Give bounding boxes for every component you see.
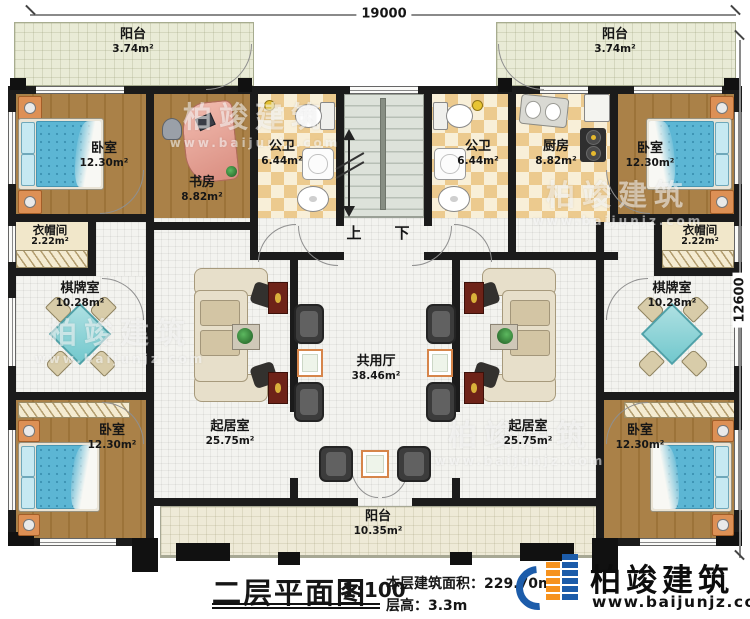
lamp-icon xyxy=(24,196,36,208)
room-area: 12.30m² xyxy=(80,157,129,169)
wall-pier xyxy=(238,78,252,92)
room-area: 25.75m² xyxy=(206,435,255,447)
company-logo-icon xyxy=(546,562,560,600)
pillow xyxy=(715,446,729,477)
table-top xyxy=(302,354,318,372)
room-name: 卧室 xyxy=(80,142,129,157)
room-name: 起居室 xyxy=(206,420,255,435)
room-label-bedroom-bottom-right: 卧室 12.30m² xyxy=(616,424,665,451)
room-name: 厨房 xyxy=(535,140,576,155)
wall xyxy=(8,392,154,400)
chair-seat xyxy=(432,311,450,337)
window xyxy=(40,538,116,546)
wardrobe-icon xyxy=(662,250,734,268)
window xyxy=(350,86,418,94)
company-logo-icon xyxy=(562,554,578,602)
wall xyxy=(610,86,618,222)
chair-seat xyxy=(432,389,450,415)
chair xyxy=(294,304,324,344)
tv-icon xyxy=(275,293,282,303)
floor-height-value: 3.3m xyxy=(428,598,467,614)
room-area: 8.82m² xyxy=(535,155,576,167)
wall xyxy=(596,392,742,400)
room-label-cloakroom-left: 衣帽间 2.22m² xyxy=(31,224,69,248)
window xyxy=(540,86,588,94)
floor-plan-canvas: 柏竣建筑 www.baijunjz.com 柏竣建筑 www.baijunjz.… xyxy=(0,0,750,619)
nightstand xyxy=(18,420,40,442)
toilet-icon xyxy=(320,102,335,130)
window xyxy=(640,538,716,546)
wall-pier xyxy=(132,538,158,572)
room-label-bath-left: 公卫 6.44m² xyxy=(261,140,302,167)
room-area: 3.74m² xyxy=(112,43,153,55)
room-label-bedroom-top-right: 卧室 12.30m² xyxy=(626,142,675,169)
dimension-height: 12600 xyxy=(733,272,748,327)
lamp-icon xyxy=(717,519,728,530)
room-name: 棋牌室 xyxy=(56,282,105,297)
tv-icon xyxy=(471,383,478,393)
stair-rail xyxy=(380,98,386,210)
corridor-left xyxy=(96,222,146,276)
room-name: 卧室 xyxy=(626,142,675,157)
sofa-cushion xyxy=(200,300,240,326)
wall xyxy=(146,86,154,222)
side-table xyxy=(297,349,323,377)
chair-seat xyxy=(300,311,318,337)
pillow xyxy=(21,477,35,508)
window xyxy=(734,430,742,510)
computer-icon xyxy=(195,112,216,131)
wall-pier xyxy=(10,78,26,90)
room-name: 公卫 xyxy=(261,140,302,155)
chair xyxy=(294,382,324,422)
lamp-icon xyxy=(23,519,34,530)
room-label-chess-left: 棋牌室 10.28m² xyxy=(56,282,105,309)
room-area: 25.75m² xyxy=(504,435,553,447)
wall xyxy=(88,222,96,276)
room-label-bath-right: 公卫 6.44m² xyxy=(457,140,498,167)
pillow xyxy=(21,154,35,186)
light-fixture-icon xyxy=(472,100,483,111)
wall xyxy=(424,86,432,226)
company-website: www.baijunjz.com xyxy=(592,593,750,611)
chair-seat xyxy=(300,389,318,415)
wall-pier xyxy=(498,78,512,92)
room-label-balcony-top-right: 阳台 3.74m² xyxy=(594,28,635,55)
nightstand xyxy=(712,514,734,536)
title-underline xyxy=(212,603,380,605)
nightstand xyxy=(710,190,734,214)
room-area: 8.82m² xyxy=(181,191,222,203)
window xyxy=(734,112,742,184)
room-name: 书房 xyxy=(181,176,222,191)
window xyxy=(734,226,742,262)
room-label-kitchen: 厨房 8.82m² xyxy=(535,140,576,167)
washer-drum xyxy=(308,154,327,173)
room-name: 共用厅 xyxy=(352,355,401,370)
room-area: 12.30m² xyxy=(616,439,665,451)
chair xyxy=(426,382,456,422)
light-fixture-icon xyxy=(264,100,275,111)
flame-icon xyxy=(591,135,596,140)
balcony-post xyxy=(176,543,230,561)
floor-area-label: 本层建筑面积： xyxy=(386,576,484,592)
tv-icon xyxy=(275,383,282,393)
side-table xyxy=(361,450,389,478)
wall xyxy=(8,268,96,276)
pillow xyxy=(715,477,729,508)
lamp-icon xyxy=(716,196,728,208)
plant-icon xyxy=(226,166,237,177)
bed xyxy=(650,442,732,512)
room-label-living-left: 起居室 25.75m² xyxy=(206,420,255,447)
room-name: 公卫 xyxy=(457,140,498,155)
room-name: 阳台 xyxy=(594,28,635,43)
window xyxy=(36,86,124,94)
arrow-down-icon xyxy=(343,206,355,217)
drain-icon xyxy=(450,196,457,202)
plant-icon xyxy=(497,328,513,344)
room-area: 3.74m² xyxy=(594,43,635,55)
wall xyxy=(250,86,258,260)
plant-icon xyxy=(237,328,253,344)
wall xyxy=(146,222,258,230)
nightstand xyxy=(712,420,734,442)
burner-icon xyxy=(586,130,601,145)
room-label-living-right: 起居室 25.75m² xyxy=(504,420,553,447)
room-area: 6.44m² xyxy=(261,155,302,167)
blanket xyxy=(71,445,97,509)
wall xyxy=(654,222,662,276)
room-label-chess-right: 棋牌室 10.28m² xyxy=(648,282,697,309)
room-label-study: 书房 8.82m² xyxy=(181,176,222,203)
floor-height-text: 层高：3.3m xyxy=(386,595,467,615)
wall xyxy=(8,214,154,222)
chair-seat xyxy=(326,452,346,476)
room-label-bedroom-bottom-left: 卧室 12.30m² xyxy=(88,424,137,451)
window xyxy=(8,430,16,510)
window xyxy=(8,298,16,366)
tv-cabinet xyxy=(268,282,288,314)
wardrobe-icon xyxy=(16,250,88,268)
room-area: 12.30m² xyxy=(626,157,675,169)
balcony-post xyxy=(278,552,300,565)
lamp-icon xyxy=(24,102,36,114)
room-name: 卧室 xyxy=(88,424,137,439)
pillow xyxy=(21,446,35,477)
kitchen-sink-icon xyxy=(519,94,570,129)
title-underline xyxy=(212,607,380,609)
wall xyxy=(610,214,742,222)
stair-direction-arrow xyxy=(348,140,350,206)
wall xyxy=(508,86,516,260)
room-area: 12.30m² xyxy=(88,439,137,451)
table-top xyxy=(432,354,448,372)
room-area: 10.28m² xyxy=(56,297,105,309)
lamp-icon xyxy=(23,425,34,436)
basin xyxy=(524,100,542,120)
toilet-icon xyxy=(446,104,473,128)
desk-chair xyxy=(162,118,182,140)
window xyxy=(634,86,722,94)
toilet-icon xyxy=(295,104,322,128)
fridge-icon xyxy=(584,94,610,122)
stair-edge xyxy=(344,216,424,218)
chair xyxy=(397,446,431,482)
sofa-cushion xyxy=(510,300,550,326)
stairs-down-label: 下 xyxy=(394,222,409,243)
room-name: 阳台 xyxy=(354,510,403,525)
chair xyxy=(426,304,456,344)
room-area: 6.44m² xyxy=(457,155,498,167)
pillow xyxy=(715,154,729,186)
wall xyxy=(654,268,742,276)
washer-icon xyxy=(302,148,334,180)
room-name: 卧室 xyxy=(616,424,665,439)
room-label-shared-hall: 共用厅 38.46m² xyxy=(352,355,401,382)
room-area: 38.46m² xyxy=(352,370,401,382)
room-area: 2.22m² xyxy=(31,237,69,248)
room-name: 阳台 xyxy=(112,28,153,43)
room-name: 起居室 xyxy=(504,420,553,435)
balcony-post xyxy=(450,552,472,565)
wall-pier xyxy=(724,78,740,90)
sink-icon xyxy=(297,186,329,212)
tv-cabinet xyxy=(268,372,288,404)
nightstand xyxy=(18,514,40,536)
stairs-up-label: 上 xyxy=(346,222,361,243)
chair xyxy=(319,446,353,482)
lamp-icon xyxy=(716,102,728,114)
window xyxy=(8,226,16,262)
lamp-icon xyxy=(717,425,728,436)
nightstand xyxy=(18,190,42,214)
room-label-cloakroom-right: 衣帽间 2.22m² xyxy=(681,224,719,248)
tv-cabinet xyxy=(464,282,484,314)
corridor-right xyxy=(604,222,654,276)
pillow xyxy=(715,122,729,154)
tv-icon xyxy=(471,293,478,303)
stove-icon xyxy=(580,128,606,162)
table-top xyxy=(366,455,384,473)
chair-seat xyxy=(404,452,424,476)
side-table xyxy=(427,349,453,377)
tv-cabinet xyxy=(464,372,484,404)
arrow-up-icon xyxy=(343,129,355,140)
sink-icon xyxy=(438,186,470,212)
room-area: 2.22m² xyxy=(681,237,719,248)
dimension-width: 19000 xyxy=(356,7,411,22)
basin xyxy=(544,102,562,122)
room-area: 10.35m² xyxy=(354,525,403,537)
burner-icon xyxy=(586,146,601,161)
pillow xyxy=(21,122,35,154)
room-area: 10.28m² xyxy=(648,297,697,309)
flame-icon xyxy=(591,151,596,156)
wall xyxy=(146,498,358,506)
wall xyxy=(412,498,604,506)
nightstand xyxy=(710,96,734,120)
room-label-balcony-top-left: 阳台 3.74m² xyxy=(112,28,153,55)
nightstand xyxy=(18,96,42,120)
bed xyxy=(18,442,100,512)
room-name: 棋牌室 xyxy=(648,282,697,297)
window xyxy=(8,112,16,184)
wall xyxy=(336,86,344,226)
room-label-balcony-bottom: 阳台 10.35m² xyxy=(354,510,403,537)
room-label-bedroom-top-left: 卧室 12.30m² xyxy=(80,142,129,169)
drain-icon xyxy=(309,196,316,202)
floor-height-label: 层高： xyxy=(386,598,428,614)
